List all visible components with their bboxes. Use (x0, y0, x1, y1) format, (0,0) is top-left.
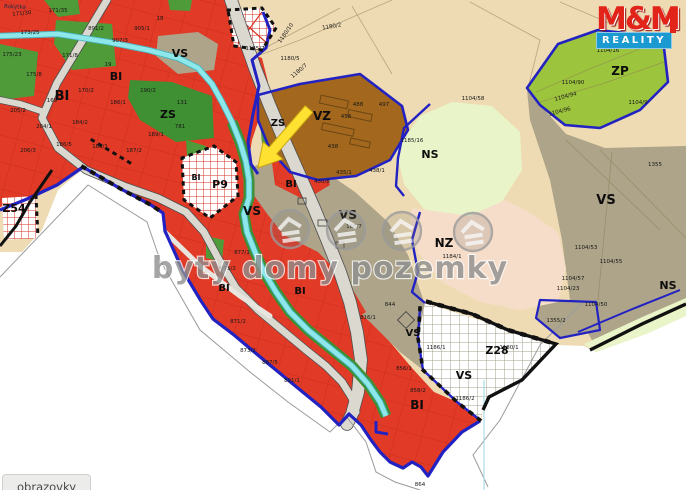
parcel-label: 205/2 (10, 108, 26, 114)
watermark-text: byty domy pozemky (152, 251, 508, 286)
parcel-label: 891/2 (88, 26, 104, 32)
parcel-label: 131 (177, 100, 188, 106)
parcel-label: 1180/1 (499, 345, 518, 351)
map-viewer: Rokytka BIBIBIBIBIBIBIVSVSVSVSVSVSZSZSVZ… (0, 0, 686, 490)
parcel-label: 438 (328, 144, 339, 150)
parcel-label: 1104/57 (562, 276, 585, 282)
parcel-label: 488 (353, 102, 364, 108)
zone-label: VS (172, 47, 189, 60)
parcel-label: 186/5 (56, 142, 72, 148)
parcel-label: 858/2 (410, 388, 426, 394)
parcel-label: 1104/58 (462, 96, 485, 102)
logo-side-tab (670, 8, 676, 33)
zone-label: BI (191, 173, 200, 182)
parcel-label: 171/8 (62, 53, 78, 59)
fullscreen-tooltip: obrazovky (2, 474, 91, 490)
parcel-label: 1104/9 (628, 100, 648, 106)
parcel-label: 1185/7 (245, 46, 265, 52)
parcel-label: 1104/90 (562, 80, 585, 86)
parcel-label: 170/2 (78, 88, 94, 94)
parcel-label: 19 (105, 62, 112, 68)
zone-label: VS (456, 369, 473, 382)
parcel-label: 1104/53 (575, 245, 598, 251)
zone-label: ZP (611, 64, 629, 78)
parcel-label: 1186/1 (426, 345, 445, 351)
parcel-label: 1104/55 (600, 259, 623, 265)
parcel-label: 816/1 (360, 315, 376, 321)
zone-label: BI (294, 286, 305, 297)
parcel-label: 497 (379, 102, 390, 108)
parcel-label: 169 (47, 98, 58, 104)
parcel-label: 1355/2 (546, 318, 565, 324)
zone-label: NZ (435, 236, 454, 250)
parcel-label: 1355 (648, 162, 662, 168)
zone-label: P9 (212, 178, 228, 191)
parcel-label: 891/1 (284, 378, 300, 384)
parcel-label: 430/8 (314, 179, 330, 185)
parcel-label: 186/1 (110, 100, 126, 106)
logo-mm-text: M&M (596, 4, 672, 34)
parcel-label: 206/3 (20, 148, 36, 154)
zone-label: NS (659, 279, 676, 292)
parcel-label: 175/8 (26, 72, 42, 78)
zone-label: VS (406, 328, 421, 339)
parcel-label: 189/1 (148, 132, 164, 138)
zone-label: Z54 (2, 202, 26, 215)
zone-label: ZS (160, 108, 176, 121)
zone-label: BI (285, 179, 296, 190)
parcel-label: 871/2 (230, 319, 246, 325)
parcel-label: 864 (415, 482, 426, 488)
parcel-label: 1180/5 (280, 56, 300, 62)
parcel-label: 175/23 (2, 52, 22, 58)
parcel-label: 781 (175, 124, 186, 130)
zone-label: ZS (271, 118, 285, 129)
parcel-label: 844 (385, 302, 396, 308)
parcel-label: 856/1 (396, 366, 412, 372)
zoning-map-canvas: Rokytka BIBIBIBIBIBIBIVSVSVSVSVSVSZSZSVZ… (0, 0, 686, 490)
parcel-label: 18 (157, 16, 164, 22)
zone-label: VS (596, 193, 615, 208)
parcel-label: 187/2 (126, 148, 142, 154)
zone-label: NS (421, 148, 438, 161)
parcel-label: 873/2 (240, 348, 256, 354)
parcel-label: 204/1 (36, 124, 52, 130)
parcel-label: 173/25 (20, 30, 40, 36)
parcel-label: 905/1 (134, 26, 150, 32)
parcel-label: 438/1 (369, 168, 385, 174)
zone-label: BI (110, 70, 122, 83)
parcel-label: 1104/23 (557, 286, 580, 292)
parcel-label: 1186/2 (455, 396, 474, 402)
parcel-label: 188/1 (92, 144, 108, 150)
mm-reality-logo: M&M REALITY (596, 4, 672, 49)
zone-label: VS (243, 204, 261, 218)
parcel-label: 435/1 (336, 170, 352, 176)
zone-label: VZ (313, 109, 331, 123)
zone-label: BI (410, 398, 424, 412)
parcel-label: 887/5 (262, 360, 278, 366)
parcel-label: 1185/16 (401, 138, 424, 144)
parcel-label: 190/2 (140, 88, 156, 94)
parcel-label: 907/3 (112, 38, 128, 44)
parcel-label: 171/35 (48, 8, 68, 14)
logo-reality-banner: REALITY (596, 32, 672, 49)
parcel-label: 458 (341, 114, 352, 120)
parcel-label: 1104/50 (585, 302, 608, 308)
stream-name-label: Rokytka (4, 4, 26, 11)
zone-zs-4 (168, 0, 192, 11)
parcel-label: 184/2 (72, 120, 88, 126)
